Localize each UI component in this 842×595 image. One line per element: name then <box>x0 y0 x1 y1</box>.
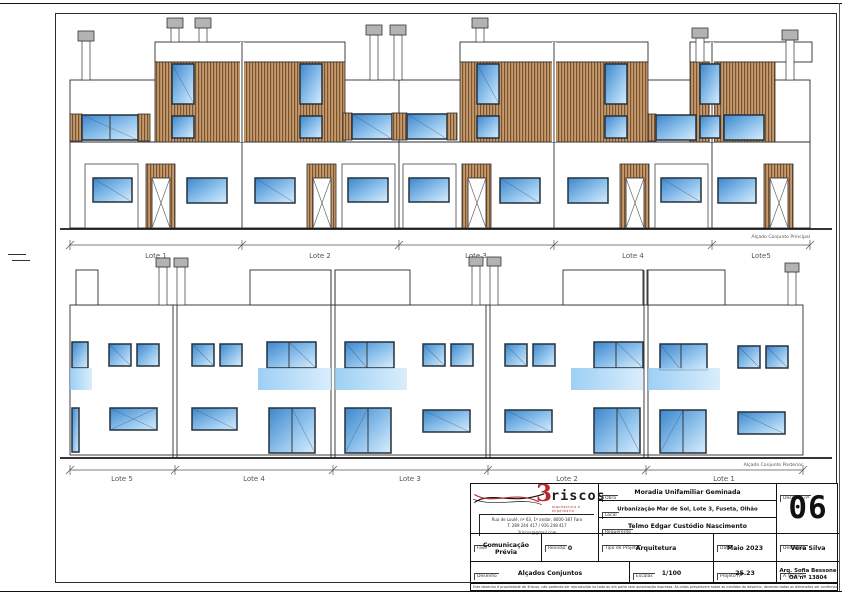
entrance-door <box>620 164 649 228</box>
tecnica-oa-number: OA nº 13804 <box>777 575 839 582</box>
principal-elevation: Lote 1 Lote 2 Lote 3 Lote 4 Lote5 Alçado… <box>60 18 832 260</box>
field-local: Local Urbanização Mar de Sol, Lote 3, Fu… <box>598 500 776 517</box>
window <box>187 178 227 203</box>
field-requerente: Requerente Telmo Edgar Custódio Nascimen… <box>598 517 776 533</box>
field-desenho-numero: Desenho nº 06 <box>776 484 839 533</box>
title-block: 3 riscos arquitectura e engenharia Rua d… <box>470 483 838 583</box>
lot-label: Lote 3 <box>399 475 421 483</box>
disclaimer-strip: Este desenho é propriedade da 3riscos, n… <box>470 583 838 591</box>
lot-label: Lote5 <box>751 252 771 260</box>
dimension-line: Lote 5 Lote 4 Lote 3 Lote 2 Lote 1 <box>66 465 807 483</box>
field-value: Maio 2023 <box>714 545 776 553</box>
field-desenhou: Desenhou Vera Silva <box>776 533 839 561</box>
field-fase: Fase Comunicação Prévia <box>471 533 541 561</box>
lot-label: Lote 5 <box>111 475 133 483</box>
field-desenho: Desenho Alçados Conjuntos <box>471 561 629 584</box>
window <box>718 178 756 203</box>
dimension-line: Lote 1 Lote 2 Lote 3 Lote 4 Lote5 <box>66 240 814 260</box>
field-value: Telmo Edgar Custódio Nascimento <box>599 523 776 531</box>
field-revisao: Revisão 0 <box>541 533 598 561</box>
elevation-title: Alçado Conjunto Posterior <box>744 462 803 468</box>
posterior-elevation: Lote 5 Lote 4 Lote 3 Lote 2 Lote 1 Alçad… <box>60 257 832 483</box>
entrance-door <box>307 164 336 228</box>
field-value: Moradia Unifamiliar Geminada <box>599 489 776 497</box>
logo-tagline: arquitectura e engenharia <box>552 505 598 513</box>
field-value: 1/100 <box>630 570 713 578</box>
elevation-title: Alçado Conjunto Principal <box>751 234 810 240</box>
entrance-door <box>462 164 491 228</box>
field-tecnica: A Técnica Arq. Sofia Bessone OA nº 13804 <box>776 561 839 584</box>
field-value: Arquitetura <box>599 545 713 553</box>
tecnica-name: Arq. Sofia Bessone <box>777 568 839 575</box>
logo-number: 3 <box>536 482 552 505</box>
drawing-sheet: Lote 1 Lote 2 Lote 3 Lote 4 Lote5 Alçado… <box>0 0 842 595</box>
field-value: Arq. Sofia Bessone OA nº 13804 <box>777 568 839 582</box>
field-value: Vera Silva <box>777 545 839 553</box>
window <box>72 408 79 452</box>
field-projeto-numero: Projeto nº 25.23 <box>713 561 776 584</box>
lot-label: Lote 4 <box>622 252 644 260</box>
entrance-door <box>764 164 793 228</box>
lot-label: Lote 2 <box>309 252 331 260</box>
logo-cell: 3 riscos arquitectura e engenharia Rua d… <box>471 484 598 533</box>
entrance-door <box>146 164 175 228</box>
field-value: 25.23 <box>714 570 776 578</box>
parapet <box>76 270 725 305</box>
window <box>348 178 388 202</box>
drawing-number: 06 <box>777 493 839 524</box>
field-tipo-projeto: Tipo de Projeto Arquitetura <box>598 533 713 561</box>
field-value: 0 <box>542 545 598 553</box>
lot-label: Lote 2 <box>556 475 578 483</box>
lot-label: Lote 4 <box>243 475 265 483</box>
company-logo: 3 riscos arquitectura e engenharia <box>471 484 598 512</box>
field-obra: Obra Moradia Unifamiliar Geminada <box>598 484 776 500</box>
lot-label: Lote 1 <box>713 475 735 483</box>
field-value: Urbanização Mar de Sol, Lote 3, Fuseta, … <box>599 506 776 513</box>
window <box>568 178 608 203</box>
field-value: Alçados Conjuntos <box>471 570 629 578</box>
field-data: Data Maio 2023 <box>713 533 776 561</box>
field-value: Comunicação Prévia <box>471 542 541 558</box>
field-escalas: Escalas 1/100 <box>629 561 713 584</box>
window <box>409 178 449 202</box>
